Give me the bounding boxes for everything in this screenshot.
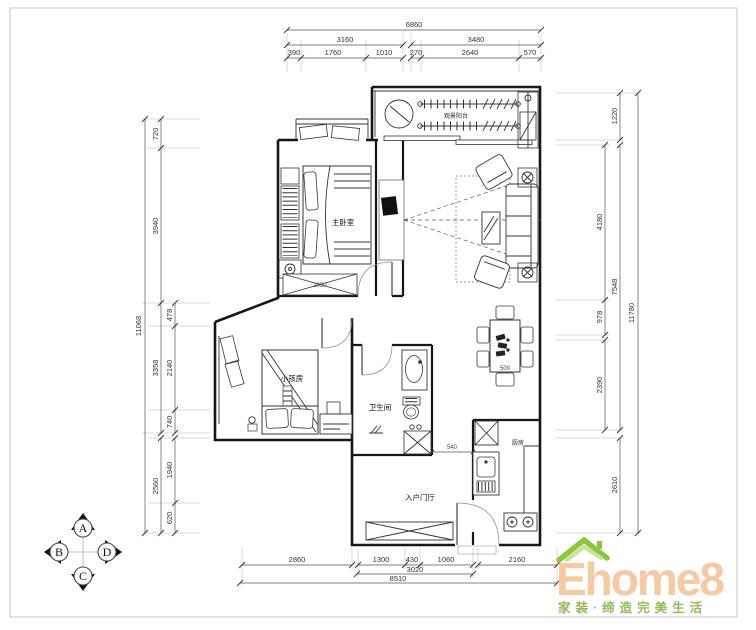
shoe-cabinet <box>366 522 453 540</box>
balcony-sliding-door <box>384 136 532 145</box>
dining-chair <box>521 327 533 343</box>
coffee-table <box>482 212 500 244</box>
logo: Ehome8 家装·缔造完美生活 <box>556 540 724 615</box>
dim-bottom-mid: 3020 <box>407 565 424 574</box>
drying-rack-icon <box>418 99 521 131</box>
sofa <box>506 184 538 268</box>
dim-bottom-seg: 430 <box>406 555 419 564</box>
dimensions-bottom: 2860 1300 430 1060 2160 3020 8510 <box>237 548 560 586</box>
dim-right-inner: 978 <box>595 311 604 324</box>
floorplan-sheet: 6860 3160 3480 390 1760 1010 270 2640 57… <box>0 0 756 630</box>
compass-south-label: C <box>79 569 87 583</box>
vanity-sink <box>402 350 427 390</box>
room-label-kitchen: 厨房 <box>512 439 524 447</box>
dim-left-inner: 478 <box>165 309 174 322</box>
room-label-bathroom: 卫生间 <box>369 402 392 412</box>
dim-right-inner: 2390 <box>595 377 604 394</box>
room-label-master-bedroom: 主卧室 <box>332 217 355 227</box>
dining-chair <box>496 373 514 386</box>
window-seat-cushions <box>220 336 244 387</box>
logo-chimney-icon <box>597 541 602 549</box>
dim-left-mid: 3358 <box>151 360 160 377</box>
kitchen-sink <box>473 452 499 495</box>
bathroom: 卫生间 <box>369 350 431 454</box>
dim-top-seg: 1010 <box>376 48 393 57</box>
dimensions-left: 11068 720 3940 3358 2560 478 2140 740 19… <box>134 116 210 536</box>
dim-left-inner: 620 <box>165 512 174 525</box>
dim-top-seg: 270 <box>410 48 423 57</box>
dim-bottom-seg: 1060 <box>438 555 455 564</box>
hallway-dim: 540 <box>430 445 475 454</box>
kitchen: 厨房 <box>473 421 540 531</box>
master-bedroom: 2050 主卧室 <box>279 124 371 295</box>
stove-icon <box>504 513 537 531</box>
dim-right-inner: 4180 <box>595 214 604 231</box>
dimensions-top: 6860 3160 3480 390 1760 1010 270 2640 57… <box>284 20 544 72</box>
dim-top-seg: 2640 <box>462 48 479 57</box>
master-bed <box>303 166 371 264</box>
armchair <box>473 255 510 290</box>
dim-left-total: 11068 <box>134 316 143 336</box>
water-heater-icon <box>518 92 538 148</box>
dim-top-seg: 570 <box>524 48 537 57</box>
dim-right-mid: 2610 <box>610 477 619 494</box>
tv-icon <box>381 196 398 216</box>
dim-left-inner: 1940 <box>165 462 174 479</box>
dim-top-seg: 1760 <box>325 48 342 57</box>
toilet-icon <box>403 397 420 419</box>
logo-brand: Ehome8 <box>556 553 724 605</box>
nightstand <box>320 402 352 434</box>
dim-wardrobe: 2050 <box>313 283 327 289</box>
dim-right-mid: 7548 <box>610 279 619 296</box>
tv-wall <box>379 180 404 260</box>
fridge-icon <box>475 421 498 445</box>
dim-top-group: 3480 <box>468 35 485 44</box>
compass-north-label: A <box>79 521 88 535</box>
dim-right-mid: 1220 <box>610 108 619 125</box>
dining-area: 500 <box>477 306 533 386</box>
dim-top-seg: 390 <box>288 48 301 57</box>
wardrobe-hangers <box>279 168 301 278</box>
kids-bed <box>262 350 318 434</box>
room-label-balcony: 观景阳台 <box>444 112 468 120</box>
dim-left-mid: 3940 <box>151 218 160 235</box>
dining-chair <box>521 351 533 367</box>
dim-left-inner: 740 <box>165 416 174 429</box>
kids-room: 小孩房 <box>220 336 352 434</box>
dim-top-group: 3160 <box>337 35 354 44</box>
dim-left-inner: 2140 <box>165 360 174 377</box>
compass: A B C D <box>44 513 122 591</box>
dim-left-mid: 2560 <box>151 478 160 495</box>
entry-hall: 540 入户门厅 <box>366 445 475 540</box>
dining-chair <box>477 327 489 343</box>
bedroom-wardrobe-low: 2050 <box>283 274 357 295</box>
dim-bottom-seg: 1300 <box>373 555 390 564</box>
logo-tagline: 家装·缔造完美生活 <box>558 600 707 615</box>
dining-chair <box>477 351 489 367</box>
dining-chair <box>496 306 514 319</box>
room-label-entry-hall: 入户门厅 <box>405 492 435 502</box>
dim-right-total: 11780 <box>627 303 636 323</box>
dim-bottom-seg: 2160 <box>509 555 526 564</box>
dim-bottom-total: 8510 <box>390 574 407 583</box>
dim-bottom-seg: 2860 <box>289 555 306 564</box>
shower-area <box>404 425 431 454</box>
bedside-lamp-icon <box>248 417 257 431</box>
compass-east-label: D <box>103 545 112 559</box>
dim-left-mid: 720 <box>151 128 160 141</box>
dim-dining-table: 500 <box>500 366 511 372</box>
dimensions-right: 1220 4180 7548 978 2390 2610 11780 <box>556 90 641 536</box>
room-label-kids-room: 小孩房 <box>281 373 304 383</box>
compass-west-label: B <box>55 545 63 559</box>
bay-window-cushions <box>299 124 359 140</box>
entry-threshold <box>458 546 496 554</box>
dim-hallway: 540 <box>447 445 458 451</box>
dim-top-total: 6860 <box>406 20 423 29</box>
floor-drain-icon <box>369 426 383 433</box>
